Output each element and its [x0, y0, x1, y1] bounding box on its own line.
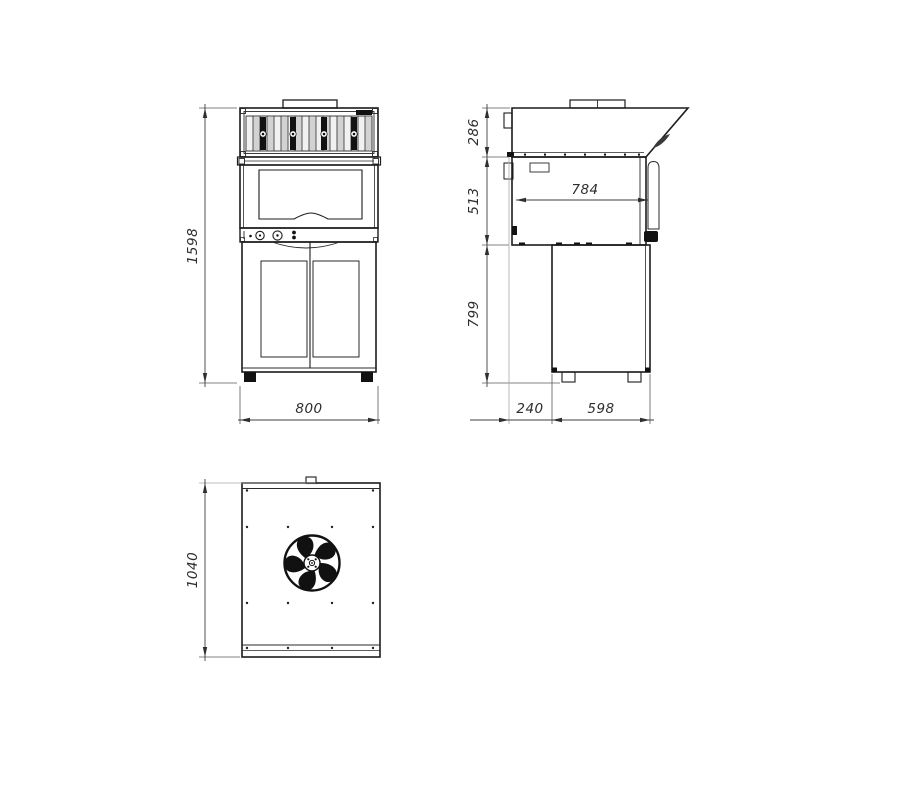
corner-screw: [241, 109, 246, 114]
grill-slats: [246, 116, 372, 151]
dimension-label: 1598: [185, 228, 201, 264]
dim-bottom-depths: 240 598: [470, 157, 654, 424]
dim-front-width: 800: [238, 386, 380, 424]
switch-button: [292, 236, 296, 240]
oven-body-side: [504, 157, 659, 246]
leg: [628, 372, 641, 382]
corner-screw: [241, 152, 246, 157]
door-handle-side: [648, 162, 659, 230]
pilot-lamp: [249, 235, 252, 238]
cabinet-door-right: [313, 261, 359, 357]
dimension-label: 513: [466, 187, 482, 214]
dimension-label: 598: [587, 401, 614, 417]
top-view: [242, 477, 380, 657]
cabinet-door-left: [261, 261, 307, 357]
grill-housing: [240, 108, 378, 157]
dimension-label: 240: [516, 401, 543, 417]
fan-icon: [281, 534, 340, 593]
hood-handle: [653, 134, 670, 148]
side-view: [504, 100, 688, 382]
switch-button: [292, 231, 296, 235]
dim-inner-depth: 784: [516, 182, 648, 202]
rear-box: [504, 113, 512, 128]
chimney-stub: [283, 100, 337, 108]
dimension-label: 799: [466, 300, 482, 327]
rear-fitting: [512, 226, 517, 235]
control-panel: [240, 228, 378, 242]
dimension-label: 784: [571, 182, 598, 198]
dimension-drawing: 1598 800 286 513 799: [0, 0, 900, 788]
door-window: [259, 170, 362, 219]
rating-plate: [530, 163, 549, 172]
nameplate: [356, 110, 372, 115]
dimension-label: 286: [466, 118, 482, 145]
ledge: [238, 157, 381, 165]
dimension-label: 1040: [185, 552, 201, 588]
base-cabinet-side: [552, 245, 650, 382]
handle-recess: [272, 242, 340, 248]
rivets: [524, 154, 640, 156]
hood: [504, 100, 688, 157]
foot: [361, 372, 373, 382]
oven-door: [240, 165, 378, 228]
dim-front-height: 1598: [185, 104, 237, 387]
foot: [244, 372, 256, 382]
front-view: [238, 100, 381, 382]
lower-cabinet: [242, 242, 376, 382]
dimensions: 1598 800 286 513 799: [185, 104, 654, 661]
door-roller: [644, 231, 658, 242]
leg: [562, 372, 575, 382]
dimension-label: 800: [295, 401, 322, 417]
technical-drawing-canvas: 1598 800 286 513 799: [0, 0, 900, 788]
corner-screw: [373, 152, 378, 157]
corner-screw: [373, 109, 378, 114]
